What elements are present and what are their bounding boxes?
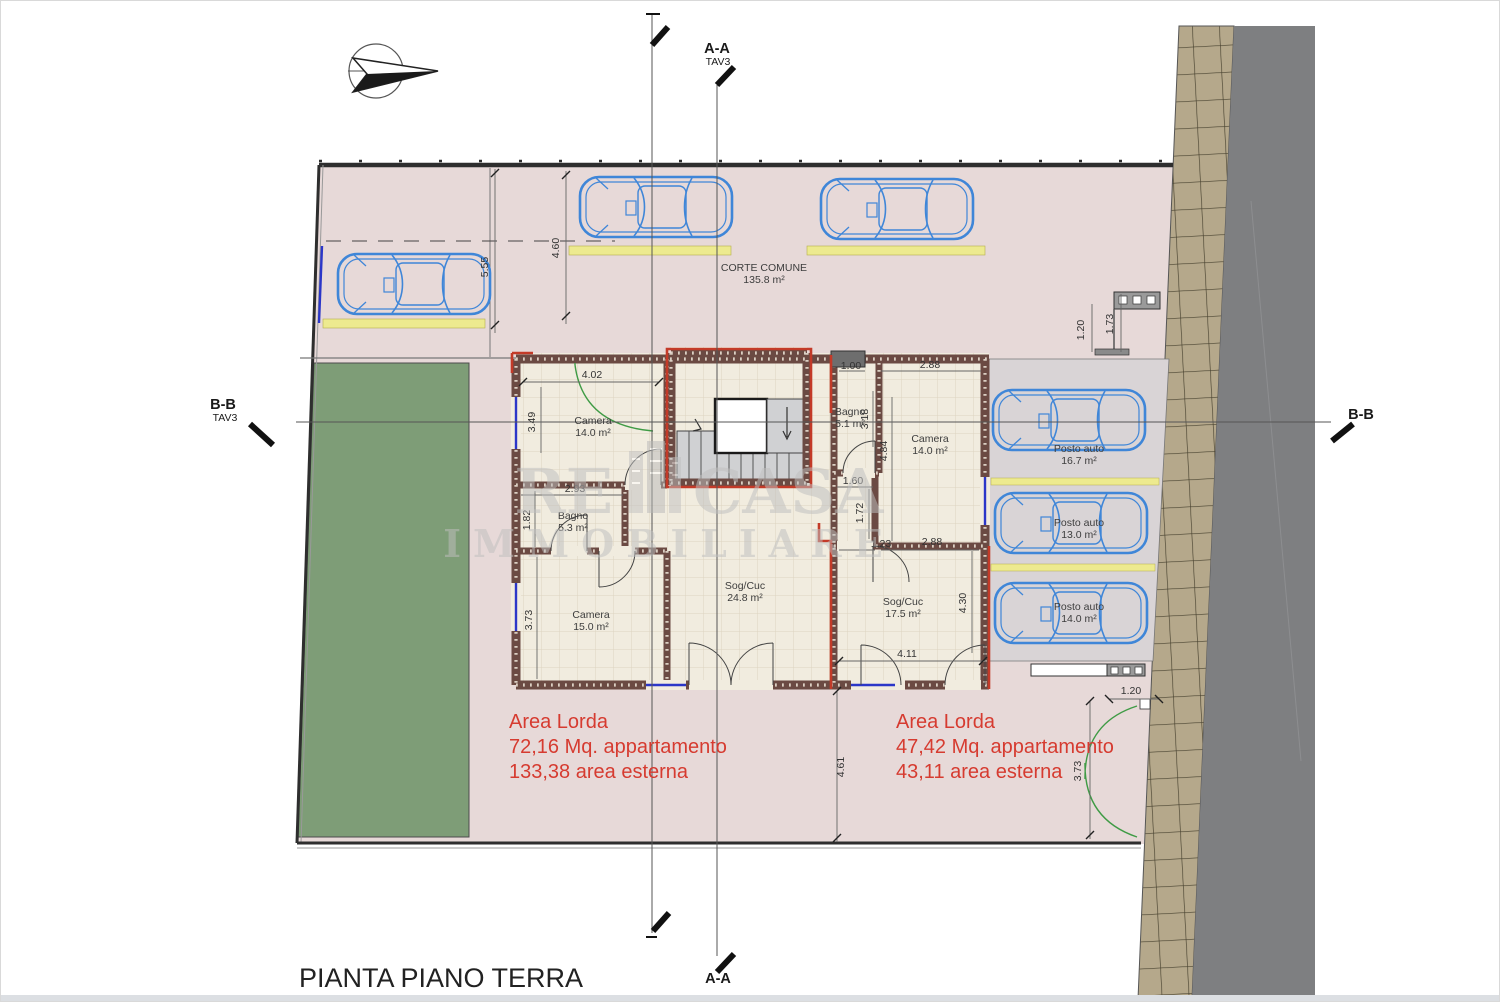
- dimension-label: 1.73: [1104, 314, 1116, 335]
- section-label-bb-left: B-B: [210, 397, 236, 413]
- dimension-label: 4.60: [550, 238, 562, 259]
- area-annotation-right-3: 43,11 area esterna: [896, 761, 1063, 783]
- parking-strip: [323, 319, 485, 328]
- room-label-area: 14.0 m²: [912, 445, 948, 457]
- parking-label-name: Posto auto: [1054, 601, 1104, 613]
- parking-label-name: Posto auto: [1054, 443, 1104, 455]
- dimension-label: 1.20: [1075, 320, 1087, 341]
- section-label-bb-right: B-B: [1348, 407, 1374, 423]
- room-label-area: 15.0 m²: [573, 621, 609, 633]
- image-bottom-border: [1, 995, 1500, 1002]
- room-label-name: Sog/Cuc: [725, 580, 765, 592]
- courtyard-area: 135.8 m²: [743, 274, 785, 286]
- section-flag-icon: [653, 913, 669, 931]
- parking-label-name: Posto auto: [1054, 517, 1104, 529]
- section-flag-icon: [717, 954, 734, 972]
- room-label-area: 5.1 m²: [835, 418, 865, 430]
- parking-strip: [807, 246, 985, 255]
- courtyard-label: CORTE COMUNE: [721, 262, 807, 274]
- section-label-aa-top: A-A: [704, 41, 730, 57]
- elevator-shaft: [715, 399, 767, 453]
- room-label-name: Camera: [911, 433, 949, 445]
- room-label-name: Bagno: [835, 406, 866, 418]
- room-label-area: 14.0 m²: [575, 427, 611, 439]
- room-label-name: Camera: [572, 609, 610, 621]
- room-label-name: Camera: [574, 415, 612, 427]
- watermark-casa: CASA: [693, 455, 884, 528]
- section-label-aa-bottom: A-A: [705, 971, 731, 987]
- section-sheet-aa-top: TAV3: [706, 56, 731, 68]
- dimension-label: 1.20: [1121, 685, 1142, 697]
- watermark-immobiliare: IMMOBILIARE: [443, 521, 894, 566]
- section-flag-icon: [1332, 424, 1353, 441]
- watermark-re: RE: [514, 455, 613, 528]
- floor-plan-page: A-A TAV3 A-A B-B TAV3 B-B 5.55 4.60 4.02…: [0, 0, 1500, 1002]
- parking-label-area: 13.0 m²: [1061, 529, 1097, 541]
- dimension-label: 3.73: [523, 610, 535, 631]
- dimension-label: 3.49: [526, 412, 538, 433]
- floor-plan-drawing: A-A TAV3 A-A B-B TAV3 B-B 5.55 4.60 4.02…: [1, 1, 1500, 1002]
- stall-divider-strip: [991, 478, 1159, 485]
- north-arrow-icon: [348, 44, 438, 98]
- dimension-label: 4.61: [835, 757, 847, 778]
- dimension-label: 4.02: [582, 369, 603, 381]
- page-title: PIANTA PIANO TERRA: [299, 963, 583, 993]
- dimension-label: 2.88: [922, 536, 943, 548]
- area-annotation-right-1: Area Lorda: [896, 711, 996, 733]
- parking-label-area: 16.7 m²: [1061, 455, 1097, 467]
- room-label-area: 24.8 m²: [727, 592, 763, 604]
- room-label-area: 17.5 m²: [885, 608, 921, 620]
- parking-strip: [569, 246, 731, 255]
- dimension-label: 2.88: [920, 359, 941, 371]
- section-flag-icon: [717, 67, 734, 85]
- area-annotation-left-2: 72,16 Mq. appartamento: [509, 736, 727, 758]
- area-annotation-right-2: 47,42 Mq. appartamento: [896, 736, 1114, 758]
- area-annotation-left-3: 133,38 area esterna: [509, 761, 689, 783]
- dimension-label: 4.11: [897, 648, 917, 660]
- section-sheet-bb-left: TAV3: [213, 412, 238, 424]
- boundary-wall-segment: [1031, 664, 1107, 676]
- stall-divider-strip: [991, 564, 1155, 571]
- section-flag-icon: [652, 27, 668, 45]
- dimension-label: 3.73: [1072, 761, 1084, 782]
- dimension-label: 1.00: [841, 360, 862, 372]
- area-annotation-left-1: Area Lorda: [509, 711, 609, 733]
- garden-area: [298, 363, 469, 837]
- dimension-label: 5.55: [479, 257, 491, 278]
- parking-label-area: 14.0 m²: [1061, 613, 1097, 625]
- section-flag-icon: [250, 424, 273, 445]
- dimension-label: 4.30: [957, 593, 969, 614]
- room-label-name: Sog/Cuc: [883, 596, 923, 608]
